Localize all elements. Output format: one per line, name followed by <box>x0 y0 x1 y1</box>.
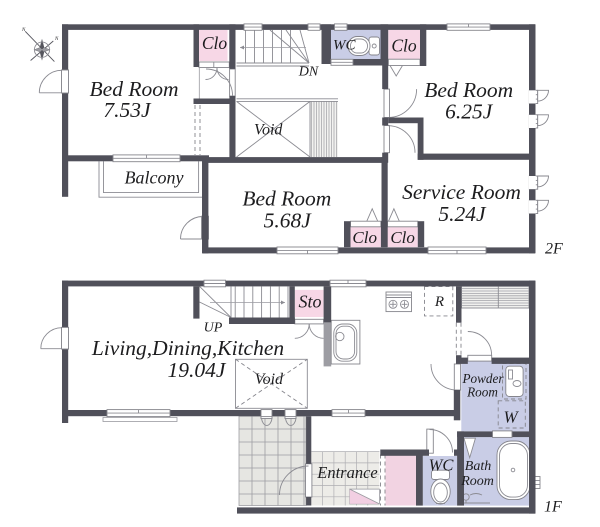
svg-text:Bed Room: Bed Room <box>242 186 331 210</box>
svg-text:Room: Room <box>466 385 498 400</box>
svg-text:R: R <box>434 294 444 310</box>
svg-text:N: N <box>21 28 26 33</box>
svg-text:Room: Room <box>460 474 494 489</box>
svg-text:2F: 2F <box>545 241 563 258</box>
svg-text:Void: Void <box>255 371 284 388</box>
svg-text:Living,Dining,Kitchen: Living,Dining,Kitchen <box>91 336 284 360</box>
svg-text:1F: 1F <box>544 499 562 516</box>
svg-text:Balcony: Balcony <box>125 168 184 188</box>
svg-text:Clo: Clo <box>390 228 415 247</box>
svg-text:Clo: Clo <box>391 36 417 56</box>
svg-text:UP: UP <box>204 321 223 336</box>
svg-text:W: W <box>504 408 520 427</box>
svg-text:7.53J: 7.53J <box>103 98 152 122</box>
svg-text:Void: Void <box>254 122 283 139</box>
svg-text:Clo: Clo <box>202 33 228 53</box>
svg-text:19.04J: 19.04J <box>168 358 227 382</box>
svg-text:Sto: Sto <box>298 291 321 311</box>
svg-text:Bath: Bath <box>465 459 491 474</box>
svg-text:5.24J: 5.24J <box>438 202 487 226</box>
svg-text:5.68J: 5.68J <box>264 208 313 232</box>
svg-text:DN: DN <box>298 65 319 80</box>
svg-text:Service Room: Service Room <box>402 180 521 204</box>
svg-text:Clo: Clo <box>352 228 377 247</box>
svg-text:6.25J: 6.25J <box>445 100 494 124</box>
svg-text:Entrance: Entrance <box>316 463 377 482</box>
svg-text:N: N <box>54 37 59 42</box>
svg-text:WC: WC <box>333 38 356 54</box>
svg-text:Bed Room: Bed Room <box>424 78 513 102</box>
svg-text:WC: WC <box>429 456 455 475</box>
